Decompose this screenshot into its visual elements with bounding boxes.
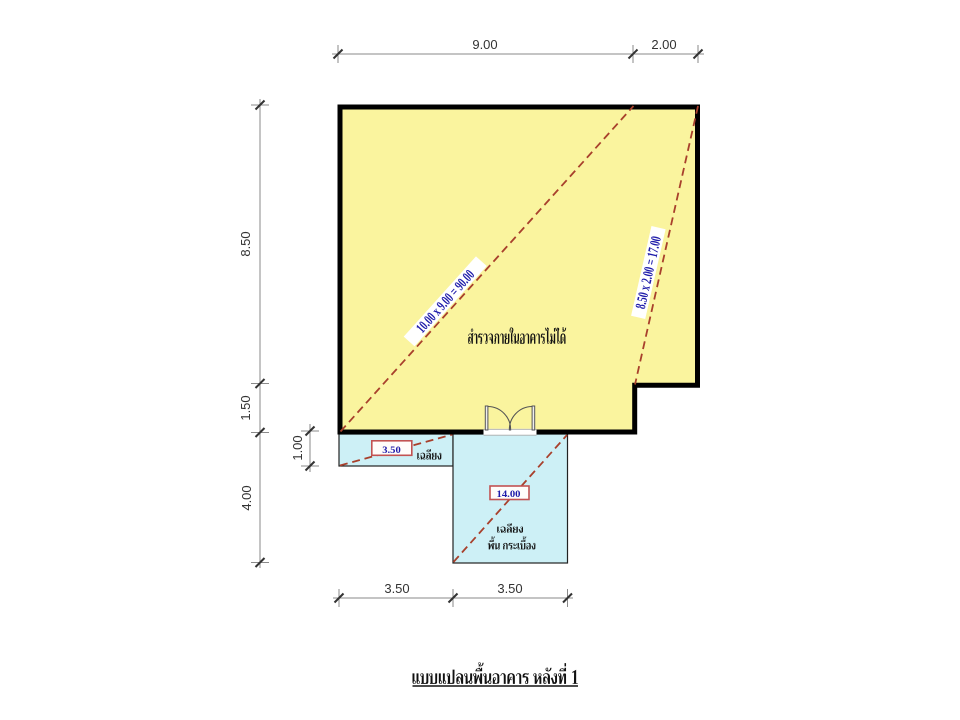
svg-text:3.50: 3.50 bbox=[384, 581, 409, 596]
svg-text:8.50: 8.50 bbox=[238, 231, 253, 256]
svg-text:3.50: 3.50 bbox=[497, 581, 522, 596]
svg-text:9.00: 9.00 bbox=[472, 37, 497, 52]
svg-text:4.00: 4.00 bbox=[239, 485, 254, 510]
svg-text:2.00: 2.00 bbox=[651, 37, 676, 52]
svg-text:14.00: 14.00 bbox=[497, 489, 521, 500]
svg-text:1.00: 1.00 bbox=[290, 435, 305, 460]
svg-text:1.50: 1.50 bbox=[238, 395, 253, 420]
svg-text:3.50: 3.50 bbox=[382, 445, 401, 456]
